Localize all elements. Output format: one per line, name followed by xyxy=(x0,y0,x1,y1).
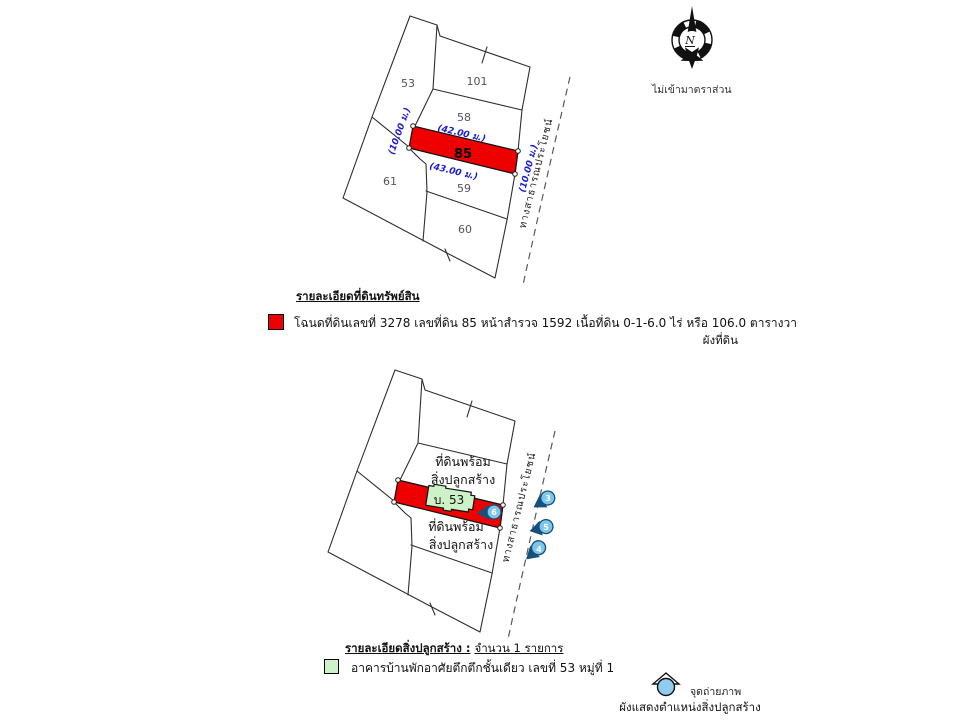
compass-rose: N xyxy=(672,6,712,69)
building-legend-entry: อาคารบ้านพักอาศัยตึกตึกชั้นเดียว เลขที่ … xyxy=(351,659,614,678)
parcel-85-label: 85 xyxy=(454,147,472,162)
parcel-61-label: 61 xyxy=(383,175,397,188)
land-survey-page: 53 101 58 85 61 59 60 (42.00 ม.) (43.00 … xyxy=(0,0,960,720)
land-legend-header: รายละเอียดที่ดินทรัพย์สิน xyxy=(296,288,420,306)
building-number-label: บ. 53 xyxy=(434,493,465,507)
parcel-101-label: 101 xyxy=(467,75,488,88)
note-below-line1: ที่ดินพร้อม xyxy=(428,518,484,534)
photo-point-5-number: 5 xyxy=(543,523,549,532)
building-legend-count: จำนวน 1 รายการ xyxy=(474,641,563,655)
parcel-59-label: 59 xyxy=(457,182,471,195)
building-plan-map: บ. 53 ที่ดินพร้อม สิ่งปลูกสร้าง ที่ดินพร… xyxy=(328,370,558,639)
survey-plans-canvas: 53 101 58 85 61 59 60 (42.00 ม.) (43.00 … xyxy=(0,0,960,720)
land-legend-entry: โฉนดที่ดินเลขที่ 3278 เลขที่ดิน 85 หน้าส… xyxy=(294,314,797,333)
building-legend-swatch xyxy=(324,659,339,674)
land-legend-swatch xyxy=(268,314,284,330)
parcel-58-label: 58 xyxy=(457,111,471,124)
note-above-line1: ที่ดินพร้อม xyxy=(435,453,491,469)
land-plan-caption: ผังที่ดิน xyxy=(628,332,738,350)
note-above-line2: สิ่งปลูกสร้าง xyxy=(431,471,495,488)
photo-point-5: 5 xyxy=(528,518,555,538)
photo-point-3-number: 3 xyxy=(545,494,551,503)
photo-point-4-number: 4 xyxy=(536,545,542,554)
note-below-line2: สิ่งปลูกสร้าง xyxy=(429,536,493,553)
building-plan-caption: ผังแสดงตำแหน่งสิ่งปลูกสร้าง xyxy=(560,699,820,717)
parcel-60-label: 60 xyxy=(458,223,472,236)
road-label-top: ทางสาธารณประโยชน์ xyxy=(516,117,556,230)
photo-point-3: 3 xyxy=(530,488,558,513)
scale-note: ไม่เข้ามาตราส่วน xyxy=(651,83,732,96)
land-plan-map: 53 101 58 85 61 59 60 (42.00 ม.) (43.00 … xyxy=(343,16,570,285)
photo-point-legend-icon xyxy=(648,671,684,699)
dimension-bottom: (43.00 ม.) xyxy=(428,162,478,183)
compass-north-letter: N xyxy=(684,34,695,47)
parcel-53-label: 53 xyxy=(401,77,415,90)
building-legend-title: รายละเอียดสิ่งปลูกสร้าง : xyxy=(345,641,470,655)
photo-point-6-number: 6 xyxy=(491,508,497,517)
photo-point-legend-label: จุดถ่ายภาพ xyxy=(690,683,741,700)
building-legend-header: รายละเอียดสิ่งปลูกสร้าง :จำนวน 1 รายการ xyxy=(345,640,563,658)
